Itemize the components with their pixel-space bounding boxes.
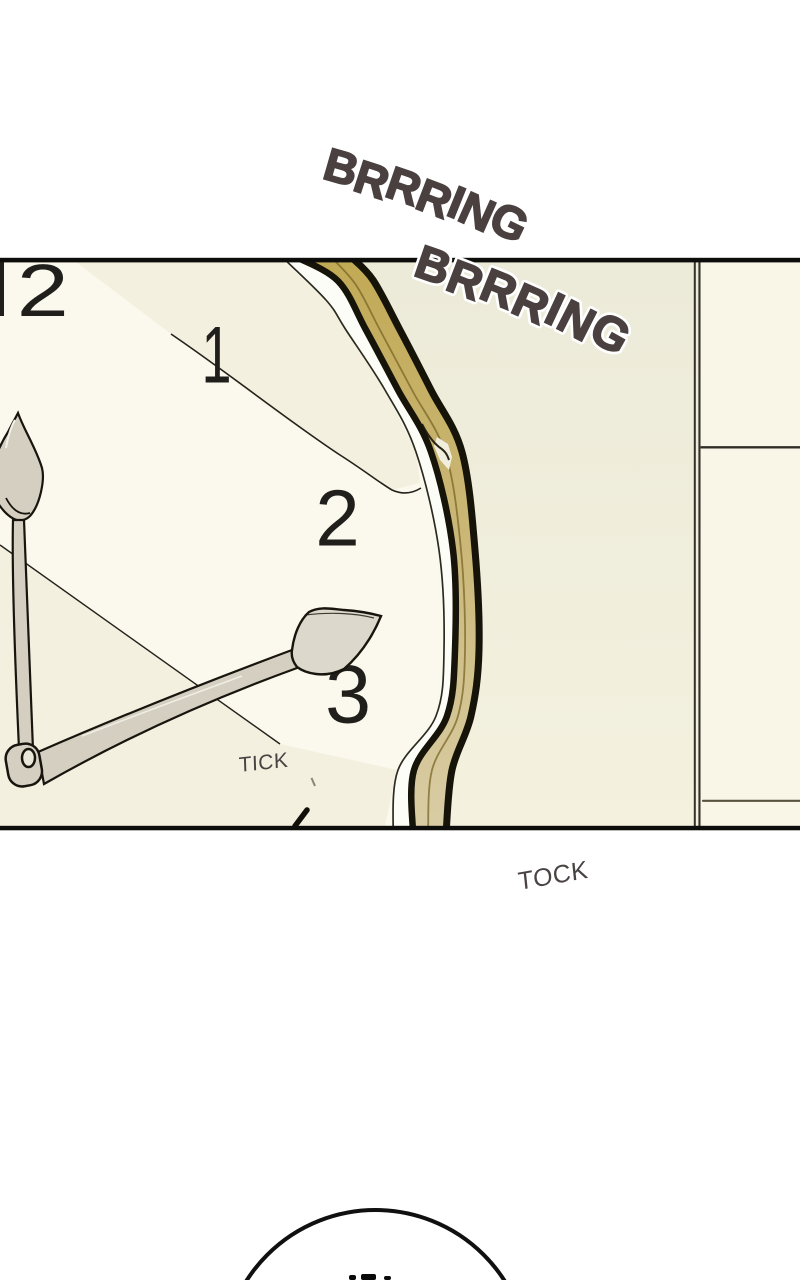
svg-text:1: 1 (202, 311, 232, 401)
svg-text:2: 2 (315, 473, 360, 562)
